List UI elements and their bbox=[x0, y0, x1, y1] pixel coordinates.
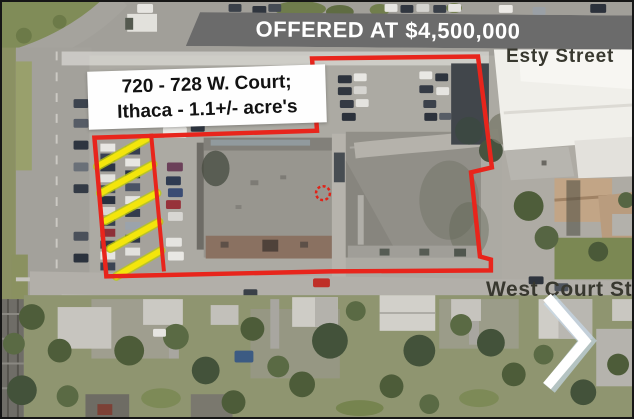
next-image-button[interactable] bbox=[534, 288, 598, 396]
parking-hatch-stripes bbox=[97, 139, 161, 277]
price-banner: OFFERED AT $4,500,000 bbox=[186, 12, 632, 50]
property-flyer: OFFERED AT $4,500,000 720 - 728 W. Court… bbox=[0, 0, 634, 419]
chevron-right-icon bbox=[534, 288, 598, 396]
crosshair-marker-icon bbox=[316, 186, 330, 200]
property-label-line2: Ithaca - 1.1+/- acre's bbox=[117, 94, 298, 125]
street-label-esty: Esty Street bbox=[506, 46, 614, 68]
price-banner-text: OFFERED AT $4,500,000 bbox=[255, 17, 520, 45]
property-label-box: 720 - 728 W. Court; Ithaca - 1.1+/- acre… bbox=[87, 64, 327, 129]
